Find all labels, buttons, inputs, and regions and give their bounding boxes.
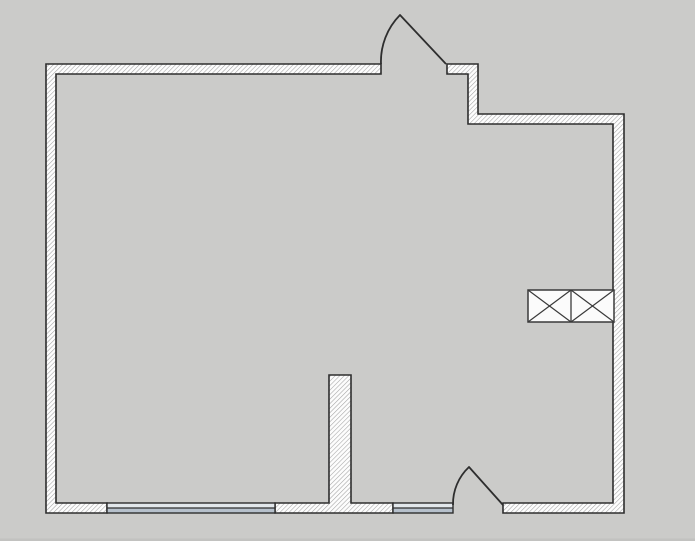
window-left bbox=[107, 503, 275, 513]
floor-plan-stage bbox=[0, 0, 695, 541]
window-right-upper-pane bbox=[393, 503, 453, 508]
window-left-lower-pane bbox=[107, 508, 275, 513]
window-right bbox=[393, 503, 453, 513]
floor-plan-canvas bbox=[0, 0, 695, 541]
cabinet bbox=[528, 290, 614, 322]
window-left-upper-pane bbox=[107, 503, 275, 508]
window-right-lower-pane bbox=[393, 508, 453, 513]
